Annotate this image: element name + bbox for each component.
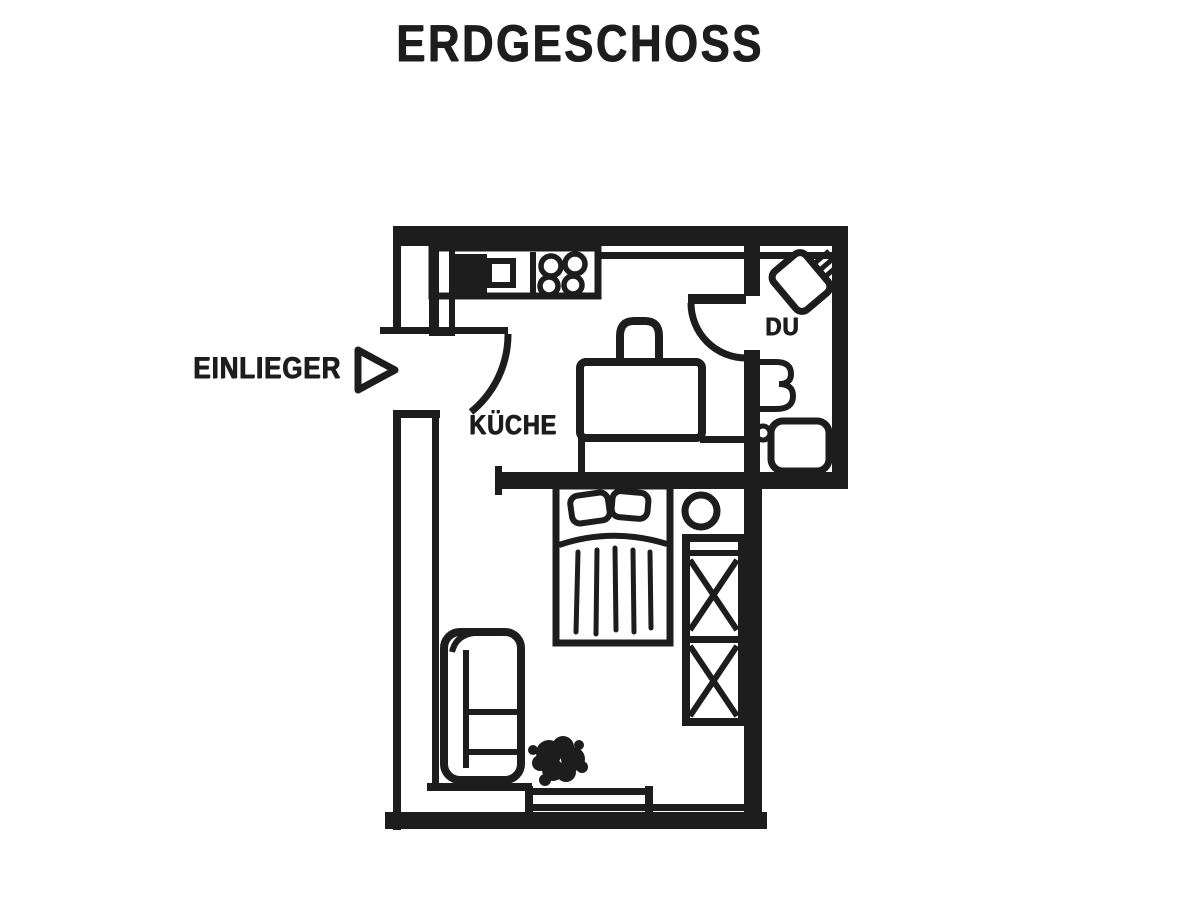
wc-bowl: [771, 421, 829, 471]
blanket-edge: [559, 536, 667, 545]
shower-tray: [769, 249, 833, 314]
entrance-arrow-icon: [358, 350, 395, 390]
sofa-outline: [444, 632, 521, 780]
burner: [565, 254, 585, 274]
bath-left-wall-upper: [744, 246, 760, 296]
top-wall: [393, 226, 848, 246]
table-wall-stub-right: [700, 436, 748, 443]
bed-icon: [556, 486, 670, 643]
floor-plan-page: ERDGESCHOSS EINLIEGER KÜCHE DU: [0, 0, 1200, 900]
window-line-top: [532, 788, 647, 795]
kitchen-counter-icon: [432, 248, 598, 333]
bottom-inner-line: [427, 783, 532, 791]
sofa-icon: [444, 632, 521, 780]
bath-door-leaf: [688, 294, 746, 304]
bottom-outer-wall: [385, 812, 767, 829]
floor-plan-drawing: [0, 0, 1200, 900]
sink-basin: [489, 261, 513, 285]
stove-icon: [540, 254, 585, 295]
wardrobe-shelf: [686, 636, 742, 643]
wardrobe-shelf: [686, 550, 742, 556]
plant-icon: [528, 736, 588, 786]
shower-tray-icon: [769, 249, 841, 314]
room-divider-wall-cap: [495, 466, 502, 495]
pillow-icon: [569, 491, 611, 524]
entrance-door-icon: [471, 334, 508, 412]
sink-fittings: [455, 254, 487, 294]
blanket-stripes: [576, 548, 651, 634]
sink-icon: [455, 254, 513, 294]
left-wall-outer-lower: [393, 410, 401, 830]
wardrobe-icon: [686, 538, 742, 722]
pillow-icon: [611, 490, 649, 519]
sofa-cushions: [466, 650, 517, 768]
left-wall-inner-lower: [432, 410, 439, 785]
window-divider-mid: [645, 786, 653, 826]
bathroom-door-icon: [691, 303, 746, 358]
burner: [540, 277, 558, 295]
window-divider-left: [525, 786, 533, 829]
counter-divider: [530, 252, 536, 294]
sofa-armrest: [452, 632, 502, 652]
bath-left-wall-lower: [744, 350, 760, 478]
counter-left-strip: [432, 248, 452, 333]
window-line-mid: [532, 804, 747, 811]
stool-icon: [685, 495, 717, 527]
washbasin-icon: [757, 362, 793, 409]
wc-icon: [756, 421, 829, 471]
table-icon: [580, 362, 702, 438]
left-wall-outer-upper: [393, 226, 401, 334]
burner: [541, 256, 561, 276]
burner: [564, 276, 582, 294]
table-wall-stub-left: [578, 438, 585, 476]
right-wall-lower: [744, 478, 762, 829]
